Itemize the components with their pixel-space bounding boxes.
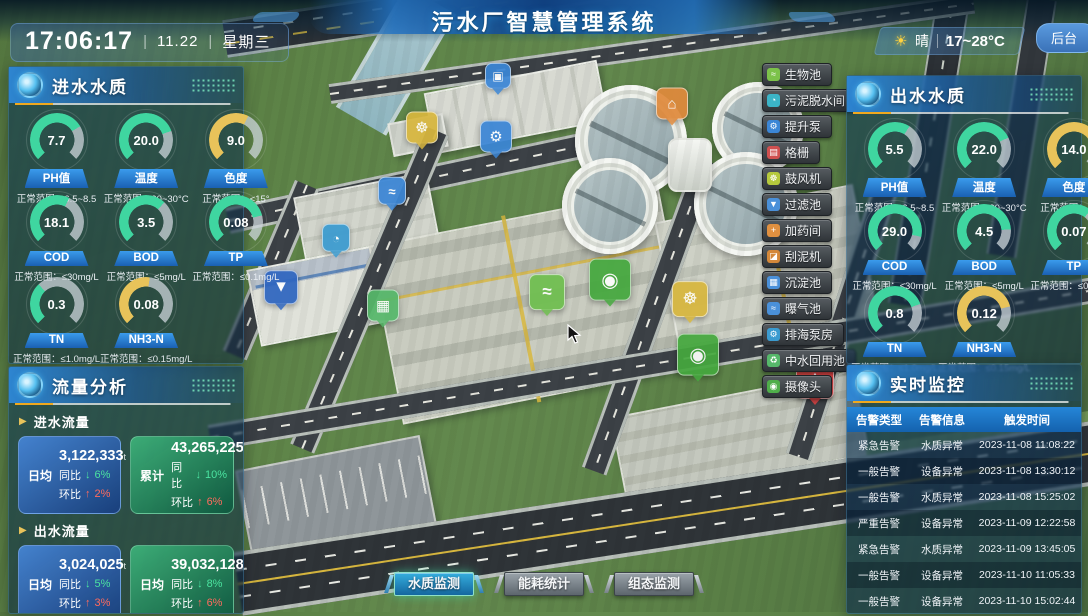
map-marker-bio-pool[interactable]: ≈ xyxy=(529,274,565,310)
flow-card: 日均 3,122,333t 同比 ↓ 6% 环比 ↑ 2% xyxy=(18,436,121,514)
inlet-gauge-grid: 7.7 PH值 正常范围：6.5~8.5 20.0 温度 正常范围：20~30°… xyxy=(9,105,243,359)
equipment-icon: ☸ xyxy=(767,172,780,185)
card-tag: 日均 xyxy=(28,576,52,593)
dots-decor xyxy=(191,78,235,93)
map-marker-dewatering[interactable]: ◔ xyxy=(322,224,350,252)
divider xyxy=(937,34,938,48)
map-marker-sedimentation[interactable]: ▣ xyxy=(485,63,511,89)
gauge-label: PH值 xyxy=(25,169,89,188)
equipment-icon: ⚙ xyxy=(767,120,780,133)
gauge-value: 22.0 xyxy=(957,122,1011,176)
alert-row: 一般告警 水质异常 2023-11-08 15:25:02 xyxy=(847,484,1081,510)
mom-label: 环比 xyxy=(59,595,81,611)
arrow-down-icon: ↓ xyxy=(196,469,202,481)
tab-water-quality-monitor[interactable]: 水质监测 xyxy=(394,572,474,596)
gauge: 0.12 NH3-N 正常范围：≤0.15mg/L xyxy=(938,286,1030,368)
panel-header: 流量分析 xyxy=(9,367,243,403)
alert-time: 2023-11-08 15:25:02 xyxy=(973,491,1081,503)
gauge-ring: 5.5 xyxy=(868,122,922,176)
marker-glyph-icon: ◉ xyxy=(601,267,618,292)
flow-card: 日均 3,024,025t 同比 ↓ 5% 环比 ↑ 3% xyxy=(18,545,121,614)
gauge: 3.5 BOD 正常范围：≤5mg/L xyxy=(100,195,192,277)
gauge: 0.8 TN 正常范围：≤1.0mg/L xyxy=(851,286,938,368)
gauge-value: 0.07 xyxy=(1047,204,1088,258)
panel-title: 流量分析 xyxy=(52,373,128,398)
gauge: 0.07 TP 正常范围：≤0.1mg/L xyxy=(1030,204,1088,286)
map-marker-reuse-pool[interactable]: ▦ xyxy=(367,289,399,321)
card-tag: 累计 xyxy=(140,467,164,484)
gauge: 0.3 TN 正常范围：≤1.0mg/L xyxy=(13,277,100,359)
alert-type: 严重告警 xyxy=(847,516,911,531)
gauge-value: 20.0 xyxy=(119,113,173,167)
gauge-label: NH3-N xyxy=(952,342,1016,357)
card-body: 3,024,025t 同比 ↓ 5% 环比 ↑ 3% xyxy=(59,557,114,611)
flow-value: 43,265,225t xyxy=(171,440,227,456)
equipment-icon: ≈ xyxy=(767,302,780,315)
alert-type: 一般告警 xyxy=(847,464,911,479)
tab-energy-stats[interactable]: 能耗统计 xyxy=(504,572,584,596)
separator: | xyxy=(208,33,212,50)
alert-info: 水质异常 xyxy=(911,490,973,505)
panel-orb-icon xyxy=(855,370,881,396)
triangle-arrow-icon: ▶ xyxy=(19,525,28,536)
marker-glyph-icon: ▦ xyxy=(376,296,390,314)
mom-percent: 3% xyxy=(95,597,111,609)
outlet-gauge-grid: 5.5 PH值 正常范围：6.5~8.5 22.0 温度 正常范围：20~30°… xyxy=(847,114,1081,368)
flow-card: 日均 39,032,128t 同比 ↓ 8% 环比 ↑ 6% xyxy=(130,545,234,614)
map-marker-lift-pump[interactable]: ⚙ xyxy=(480,120,512,152)
equipment-icon: ◔ xyxy=(767,94,780,107)
gauge-value: 5.5 xyxy=(868,122,922,176)
gauge-normal-range: 正常范围：≤0.1mg/L xyxy=(1030,278,1088,292)
gauge-normal-range: 正常范围：≤0.15mg/L xyxy=(100,351,192,365)
alert-info: 设备异常 xyxy=(911,594,973,609)
dots-decor xyxy=(191,378,235,393)
yoy-percent: 10% xyxy=(205,469,227,481)
equipment-icon: ⚙ xyxy=(767,328,780,341)
alert-time: 2023-11-10 11:05:33 xyxy=(973,569,1081,581)
gauge-label: 温度 xyxy=(114,169,178,188)
gauge-label: TN xyxy=(25,333,89,348)
arrow-up-icon: ↑ xyxy=(85,597,91,609)
equipment-menu: ≈ 生物池 ◔ 污泥脱水间 ⚙ 提升泵 ▤ 格栅 ☸ 鼓风机 ▼ 过滤池 + 加… xyxy=(762,63,856,401)
gauge: 0.08 TP 正常范围：≤0.1mg/L xyxy=(192,195,279,277)
gauge-normal-range: 正常范围：≤1.0mg/L xyxy=(13,351,100,365)
weather-condition: 晴 xyxy=(915,31,929,51)
gauge-ring: 7.7 xyxy=(30,113,84,167)
gauge-value: 0.3 xyxy=(30,277,84,331)
arrow-up-icon: ↑ xyxy=(85,488,91,500)
gauge-value: 7.7 xyxy=(30,113,84,167)
alert-type: 紧急告警 xyxy=(847,542,911,557)
flow-value: 3,122,333t xyxy=(59,448,114,464)
column-header: 触发时间 xyxy=(973,412,1081,428)
equipment-button-sludge-dewater[interactable]: ◔ 污泥脱水间 xyxy=(762,89,856,112)
marker-glyph-icon: ☸ xyxy=(415,118,428,136)
gauge-ring: 29.0 xyxy=(868,204,922,258)
gauge-ring: 0.12 xyxy=(957,286,1011,340)
equipment-icon: ♻ xyxy=(767,354,780,367)
marker-glyph-icon: ≈ xyxy=(542,282,551,302)
alert-time: 2023-11-09 13:45:05 xyxy=(973,543,1081,555)
equipment-label: 摄像头 xyxy=(785,378,821,395)
realtime-monitor-panel: 实时监控 告警类型 告警信息 触发时间 紧急告警 水质异常 2023-11-08… xyxy=(846,364,1082,614)
gauge-ring: 0.3 xyxy=(30,277,84,331)
gauge-normal-range: 正常范围：≤0.1mg/L xyxy=(192,269,279,283)
inlet-flow-cards: 日均 3,122,333t 同比 ↓ 6% 环比 ↑ 2% 累计 xyxy=(9,436,243,514)
yoy-trend: 同比 ↓ 10% xyxy=(171,459,227,491)
card-body: 39,032,128t 同比 ↓ 8% 环比 ↑ 6% xyxy=(171,557,227,611)
mom-trend: 环比 ↑ 6% xyxy=(171,494,227,510)
bottom-tab-bar: 水质监测能耗统计组态监测 xyxy=(394,572,694,596)
equipment-button-scraper[interactable]: ◪ 刮泥机 xyxy=(762,245,832,268)
yoy-trend: 同比 ↓ 8% xyxy=(171,576,227,592)
equipment-label: 鼓风机 xyxy=(785,170,821,187)
gauge-value: 14.0 xyxy=(1047,122,1088,176)
alert-info: 水质异常 xyxy=(911,542,973,557)
mom-trend: 环比 ↑ 2% xyxy=(59,486,114,502)
outlet-flow-cards: 日均 3,024,025t 同比 ↓ 5% 环比 ↑ 3% 日均 xyxy=(9,545,243,614)
alert-table: 告警类型 告警信息 触发时间 紧急告警 水质异常 2023-11-08 11:0… xyxy=(847,407,1081,614)
gauge: 14.0 色度 正常范围：<15° xyxy=(1030,122,1088,204)
triangle-arrow-icon: ▶ xyxy=(19,416,28,427)
gauge-ring: 0.08 xyxy=(209,195,263,249)
equipment-button-lift-pump[interactable]: ⚙ 提升泵 xyxy=(762,115,832,138)
equipment-button-sea-pump-house[interactable]: ⚙ 排海泵房 xyxy=(762,323,844,346)
card-body: 43,265,225t 同比 ↓ 10% 环比 ↑ 6% xyxy=(171,440,227,510)
yoy-percent: 5% xyxy=(95,578,111,590)
mom-label: 环比 xyxy=(171,595,193,611)
equipment-label: 格栅 xyxy=(785,144,809,161)
equipment-button-bio-pool[interactable]: ≈ 生物池 xyxy=(762,63,832,86)
gauge-value: 3.5 xyxy=(119,195,173,249)
temperature-range: 17~28°C xyxy=(946,33,1005,50)
panel-orb-icon xyxy=(17,72,43,98)
panel-orb-icon xyxy=(855,81,881,107)
arrow-down-icon: ↓ xyxy=(197,578,203,590)
clock-block: 17:06:17 | 11.22 | 星期三 xyxy=(10,23,289,62)
outlet-quality-panel: 出水水质 5.5 PH值 正常范围：6.5~8.5 22.0 温度 正常范围：2… xyxy=(846,75,1082,364)
marker-glyph-icon: ☸ xyxy=(682,289,697,309)
alert-time: 2023-11-08 13:30:12 xyxy=(973,465,1081,477)
current-date: 11.22 xyxy=(157,33,198,50)
equipment-icon: ▼ xyxy=(767,198,780,211)
gauge-label: 色度 xyxy=(204,169,268,188)
equipment-label: 生物池 xyxy=(785,66,821,83)
gauge-value: 9.0 xyxy=(209,113,263,167)
panel-orb-icon xyxy=(17,372,43,398)
yoy-label: 同比 xyxy=(171,459,191,491)
arrow-up-icon: ↑ xyxy=(197,496,203,508)
equipment-icon: ▦ xyxy=(767,276,780,289)
gauge-value: 0.08 xyxy=(209,195,263,249)
panel-divider xyxy=(853,401,1075,403)
gauge-value: 18.1 xyxy=(30,195,84,249)
card-tag: 日均 xyxy=(28,467,52,484)
mom-trend: 环比 ↑ 6% xyxy=(171,595,227,611)
gauge-value: 0.8 xyxy=(868,286,922,340)
mom-label: 环比 xyxy=(171,494,193,510)
map-marker-camera-1[interactable]: ◉ xyxy=(589,259,631,301)
gauge-ring: 0.8 xyxy=(868,286,922,340)
equipment-label: 刮泥机 xyxy=(785,248,821,265)
alert-rows: 紧急告警 水质异常 2023-11-08 11:08:22 一般告警 设备异常 … xyxy=(847,432,1081,614)
equipment-button-sedimentation[interactable]: ▦ 沉淀池 xyxy=(762,271,832,294)
equipment-button-aeration-pool[interactable]: ≈ 曝气池 xyxy=(762,297,832,320)
gauge-value: 0.12 xyxy=(957,286,1011,340)
gauge-value: 0.08 xyxy=(119,277,173,331)
yoy-trend: 同比 ↓ 5% xyxy=(59,576,114,592)
marker-glyph-icon: ◉ xyxy=(689,342,706,367)
marker-glyph-icon: ▣ xyxy=(492,69,503,83)
equipment-button-reclaimed-pool[interactable]: ♻ 中水回用池 xyxy=(762,349,856,372)
equipment-icon: + xyxy=(767,224,780,237)
map-marker-blower-2[interactable]: ☸ xyxy=(672,281,708,317)
panel-title: 实时监控 xyxy=(890,371,966,396)
clarifier-center-unit xyxy=(668,138,712,192)
arrow-down-icon: ↓ xyxy=(85,578,91,590)
equipment-icon: ◉ xyxy=(767,380,780,393)
backend-button[interactable]: 后台 xyxy=(1036,23,1088,53)
gauge-ring: 9.0 xyxy=(209,113,263,167)
mom-trend: 环比 ↑ 3% xyxy=(59,595,114,611)
panel-title: 出水水质 xyxy=(890,82,966,107)
equipment-button-grille[interactable]: ▤ 格栅 xyxy=(762,141,820,164)
equipment-label: 沉淀池 xyxy=(785,274,821,291)
gauge-label: PH值 xyxy=(863,178,927,197)
equipment-icon: ≈ xyxy=(767,68,780,81)
dots-decor xyxy=(1029,87,1073,102)
gauge-label: 色度 xyxy=(1042,178,1088,197)
inlet-quality-panel: 进水水质 7.7 PH值 正常范围：6.5~8.5 20.0 温度 正常范围：2… xyxy=(8,66,244,364)
dots-decor xyxy=(1029,376,1073,391)
yoy-label: 同比 xyxy=(59,576,81,592)
equipment-label: 排海泵房 xyxy=(785,326,833,343)
section-label: 出水流量 xyxy=(34,521,90,540)
gauge: 0.08 NH3-N 正常范围：≤0.15mg/L xyxy=(100,277,192,359)
section-label: 进水流量 xyxy=(34,412,90,431)
gauge-label: BOD xyxy=(952,260,1016,275)
gauge-label: NH3-N xyxy=(114,333,178,348)
yoy-trend: 同比 ↓ 6% xyxy=(59,467,114,483)
map-marker-dosing-room[interactable]: ⌂ xyxy=(656,87,688,119)
alert-type: 一般告警 xyxy=(847,594,911,609)
gauge: 22.0 温度 正常范围：20~30°C xyxy=(938,122,1030,204)
equipment-label: 中水回用池 xyxy=(785,352,845,369)
yoy-label: 同比 xyxy=(59,467,81,483)
weather-widget: ☀ 晴 17~28°C xyxy=(873,27,1025,55)
map-marker-aeration[interactable]: ≈ xyxy=(378,177,406,205)
gauge: 9.0 色度 正常范围：<15° xyxy=(192,113,279,195)
flow-analysis-panel: 流量分析 ▶ 进水流量 日均 3,122,333t 同比 ↓ 6% 环比 ↑ xyxy=(8,366,244,614)
equipment-button-dosing-room[interactable]: + 加药间 xyxy=(762,219,832,242)
gauge-label: TN xyxy=(863,342,927,357)
gauge: 5.5 PH值 正常范围：6.5~8.5 xyxy=(851,122,938,204)
separator: | xyxy=(143,33,147,50)
gauge-ring: 20.0 xyxy=(119,113,173,167)
alert-type: 一般告警 xyxy=(847,490,911,505)
gauge-ring: 0.07 xyxy=(1047,204,1088,258)
gauge-label: COD xyxy=(863,260,927,275)
alert-row: 一般告警 设备异常 2023-11-08 13:30:12 xyxy=(847,458,1081,484)
map-marker-blower-1[interactable]: ☸ xyxy=(406,111,438,143)
alert-info: 设备异常 xyxy=(911,464,973,479)
alert-type: 一般告警 xyxy=(847,568,911,583)
alert-time: 2023-11-08 11:08:22 xyxy=(973,439,1081,451)
flow-value: 3,024,025t xyxy=(59,557,114,573)
marker-glyph-icon: ≈ xyxy=(388,183,395,198)
column-header: 告警信息 xyxy=(911,412,973,428)
mom-label: 环比 xyxy=(59,486,81,502)
flow-card: 累计 43,265,225t 同比 ↓ 10% 环比 ↑ 6% xyxy=(130,436,234,514)
gauge: 29.0 COD 正常范围：≤30mg/L xyxy=(851,204,938,286)
gauge: 7.7 PH值 正常范围：6.5~8.5 xyxy=(13,113,100,195)
gauge-label: TP xyxy=(204,251,268,266)
alert-type: 紧急告警 xyxy=(847,438,911,453)
equipment-icon: ▤ xyxy=(767,146,780,159)
marker-glyph-icon: ⌂ xyxy=(667,95,676,112)
map-marker-camera-2[interactable]: ◉ xyxy=(677,334,719,376)
gauge: 4.5 BOD 正常范围：≤5mg/L xyxy=(938,204,1030,286)
sun-icon: ☀ xyxy=(894,32,907,50)
gauge-label: BOD xyxy=(114,251,178,266)
gauge-label: COD xyxy=(25,251,89,266)
panel-header: 实时监控 xyxy=(847,365,1081,401)
equipment-icon: ◪ xyxy=(767,250,780,263)
marker-glyph-icon: ⚙ xyxy=(489,127,502,145)
equipment-button-filter-pool[interactable]: ▼ 过滤池 xyxy=(762,193,832,216)
inlet-flow-section-label: ▶ 进水流量 xyxy=(19,412,233,431)
arrow-up-icon: ↑ xyxy=(197,597,203,609)
yoy-percent: 8% xyxy=(207,578,223,590)
gauge-value: 4.5 xyxy=(957,204,1011,258)
panel-header: 进水水质 xyxy=(9,67,243,103)
yoy-label: 同比 xyxy=(171,576,193,592)
gauge-label: 温度 xyxy=(952,178,1016,197)
arrow-down-icon: ↓ xyxy=(85,469,91,481)
marker-glyph-icon: ◔ xyxy=(332,230,340,245)
flow-unit: t xyxy=(124,452,127,462)
equipment-label: 过滤池 xyxy=(785,196,821,213)
yoy-percent: 6% xyxy=(95,469,111,481)
equipment-label: 曝气池 xyxy=(785,300,821,317)
gauge: 18.1 COD 正常范围：≤30mg/L xyxy=(13,195,100,277)
equipment-label: 加药间 xyxy=(785,222,821,239)
alert-row: 紧急告警 水质异常 2023-11-08 11:08:22 xyxy=(847,432,1081,458)
outlet-flow-section-label: ▶ 出水流量 xyxy=(19,521,233,540)
alert-row: 一般告警 设备异常 2023-11-10 11:05:33 xyxy=(847,562,1081,588)
alert-row: 紧急告警 水质异常 2023-11-09 13:45:05 xyxy=(847,536,1081,562)
alert-info: 水质异常 xyxy=(911,438,973,453)
alert-time: 2023-11-09 12:22:58 xyxy=(973,517,1081,529)
panel-header: 出水水质 xyxy=(847,76,1081,112)
clarifier-tank xyxy=(562,158,658,254)
flow-value: 39,032,128t xyxy=(171,557,227,573)
equipment-button-blower[interactable]: ☸ 鼓风机 xyxy=(762,167,832,190)
alert-row: 严重告警 设备异常 2023-11-09 12:22:58 xyxy=(847,510,1081,536)
panel-title: 进水水质 xyxy=(52,73,128,98)
equipment-label: 污泥脱水间 xyxy=(785,92,845,109)
panel-divider xyxy=(15,403,237,405)
gauge-ring: 22.0 xyxy=(957,122,1011,176)
alert-row: 一般告警 设备异常 2023-11-10 15:02:44 xyxy=(847,588,1081,614)
tab-scada-monitor[interactable]: 组态监测 xyxy=(614,572,694,596)
current-weekday: 星期三 xyxy=(222,31,270,52)
card-tag: 日均 xyxy=(140,576,164,593)
gauge-label: TP xyxy=(1042,260,1088,275)
column-header: 告警类型 xyxy=(847,412,911,428)
mom-percent: 6% xyxy=(207,597,223,609)
equipment-label: 提升泵 xyxy=(785,118,821,135)
flow-unit: t xyxy=(124,561,127,571)
gauge-ring: 4.5 xyxy=(957,204,1011,258)
gauge-ring: 18.1 xyxy=(30,195,84,249)
alert-table-header: 告警类型 告警信息 触发时间 xyxy=(847,407,1081,432)
card-body: 3,122,333t 同比 ↓ 6% 环比 ↑ 2% xyxy=(59,448,114,502)
gauge-value: 29.0 xyxy=(868,204,922,258)
gauge-ring: 0.08 xyxy=(119,277,173,331)
alert-info: 设备异常 xyxy=(911,568,973,583)
mom-percent: 2% xyxy=(95,488,111,500)
alert-info: 设备异常 xyxy=(911,516,973,531)
gauge-ring: 14.0 xyxy=(1047,122,1088,176)
mom-percent: 6% xyxy=(207,496,223,508)
gauge-ring: 3.5 xyxy=(119,195,173,249)
alert-time: 2023-11-10 15:02:44 xyxy=(973,595,1081,607)
equipment-button-camera[interactable]: ◉ 摄像头 xyxy=(762,375,832,398)
current-time: 17:06:17 xyxy=(25,27,133,56)
gauge: 20.0 温度 正常范围：20~30°C xyxy=(100,113,192,195)
